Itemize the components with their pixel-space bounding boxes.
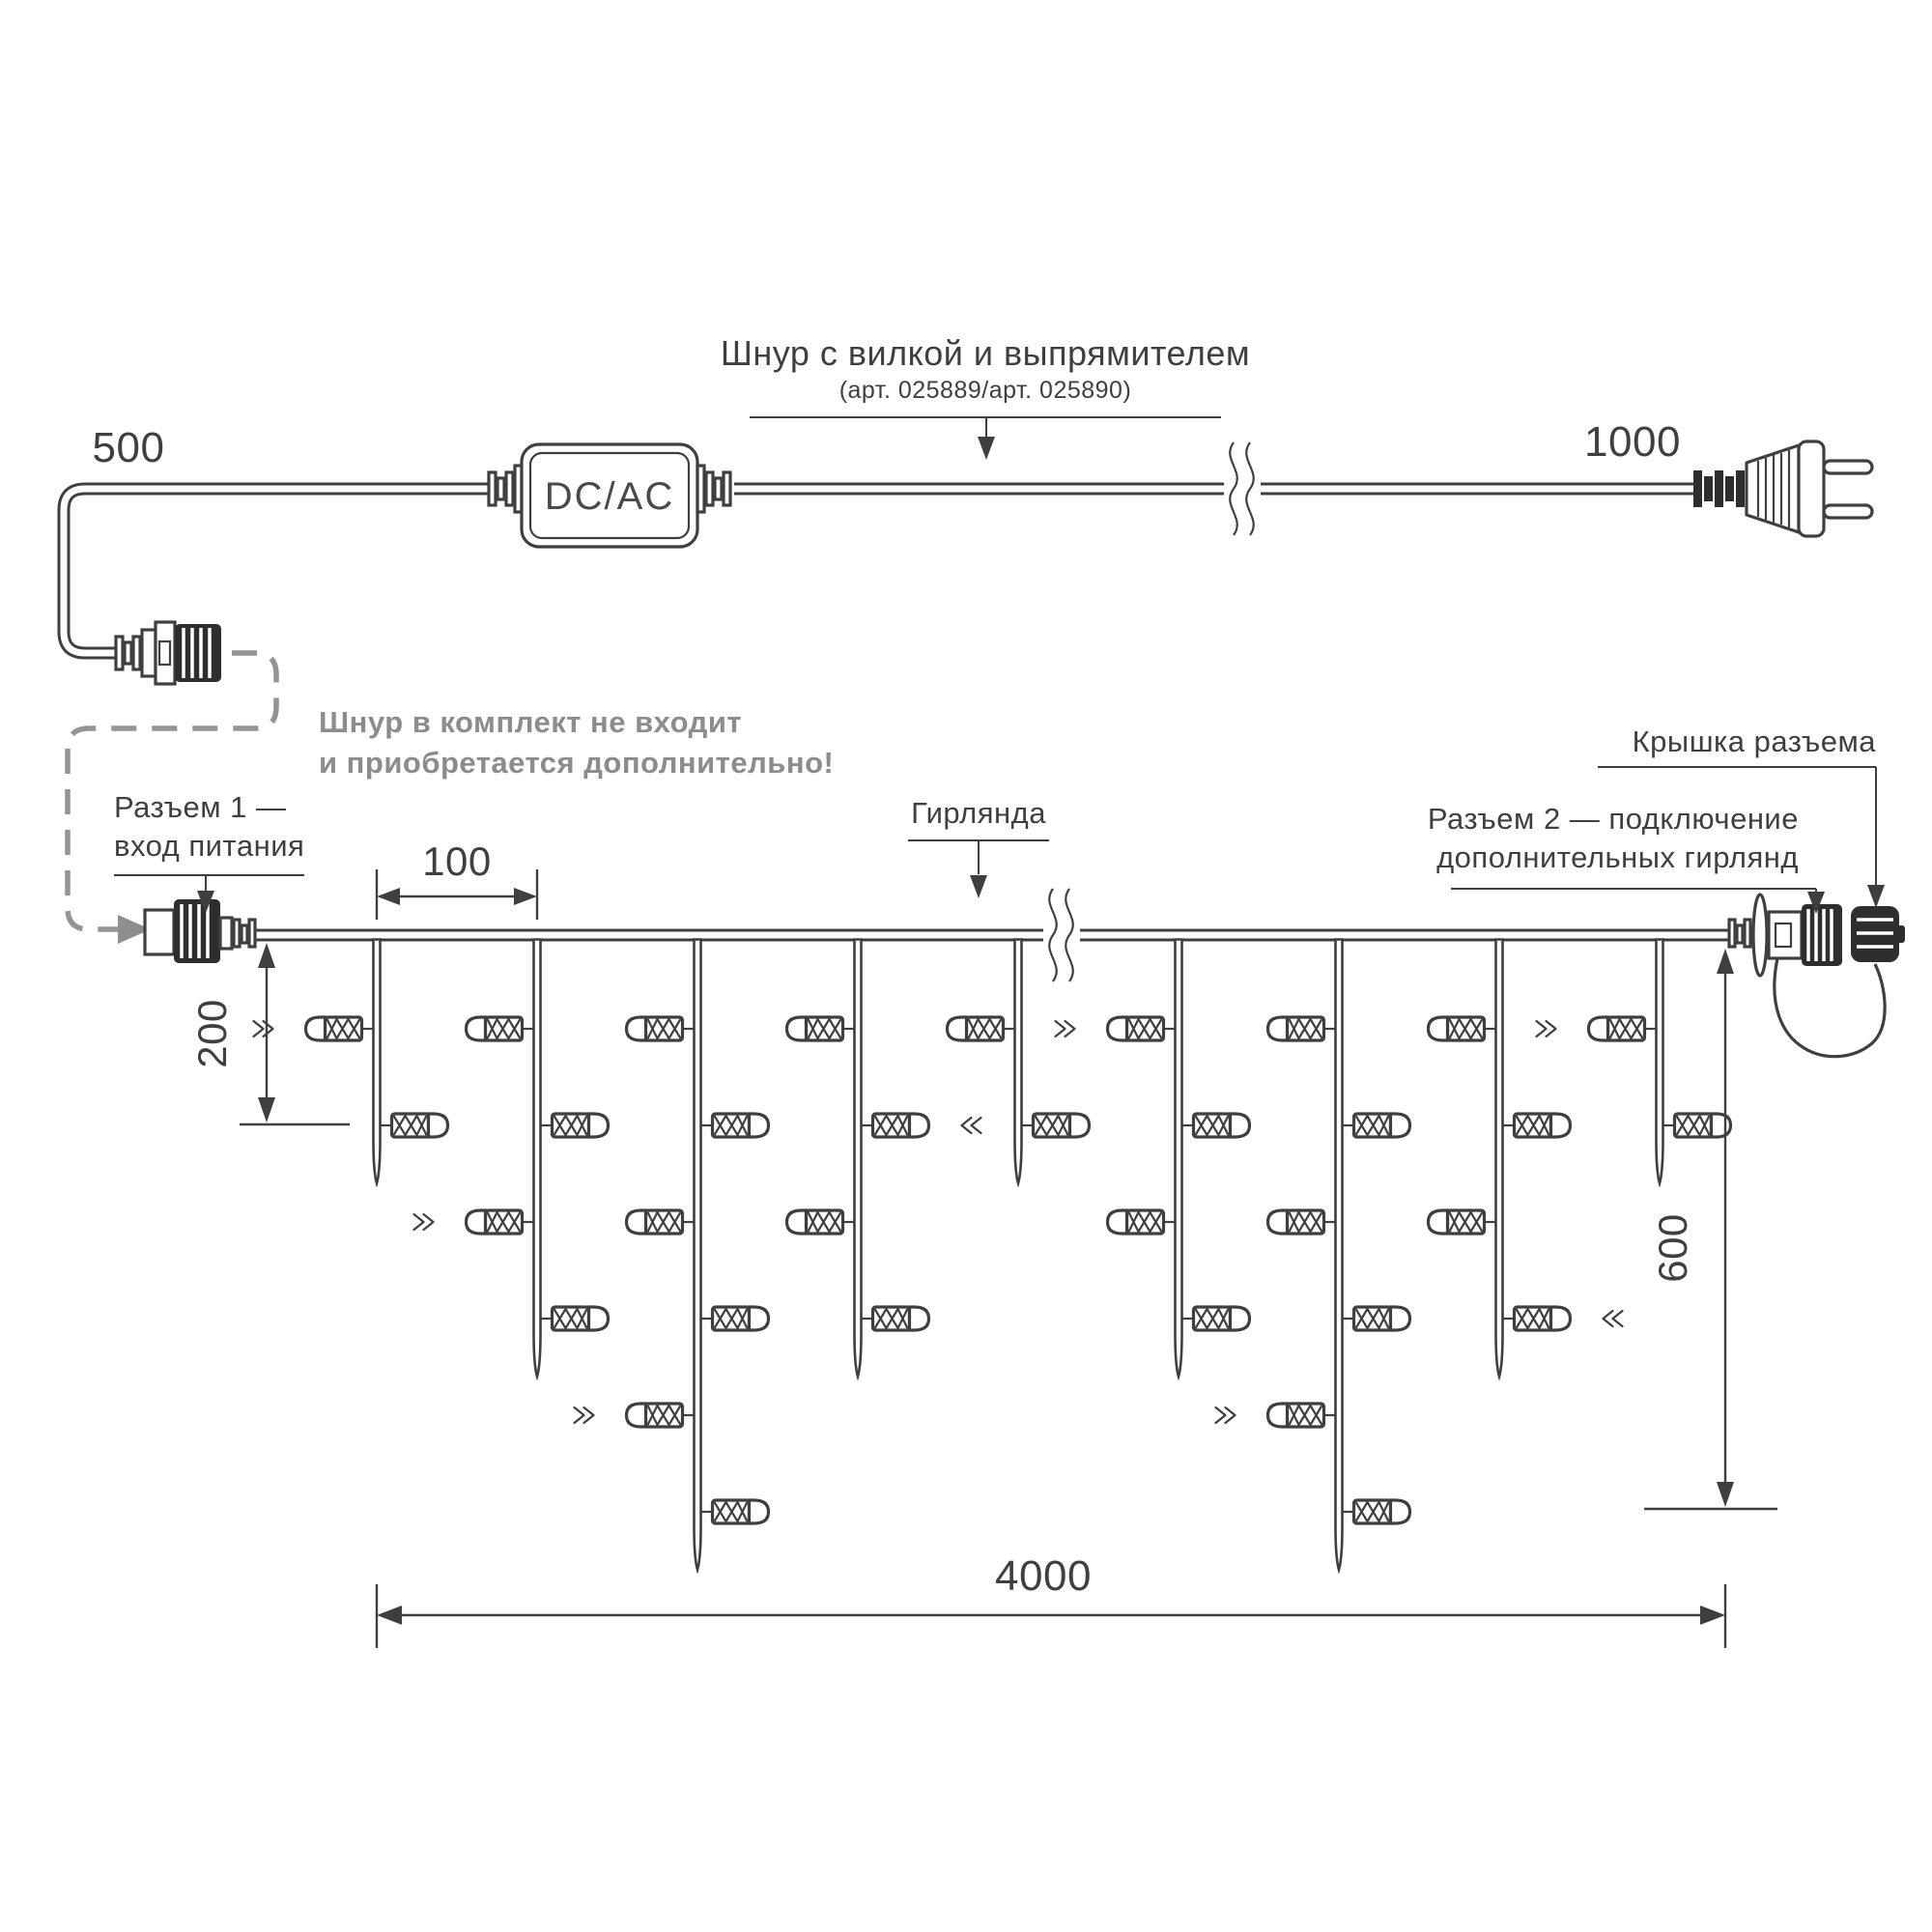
led-bulb-icon (1182, 1114, 1250, 1137)
dim-500-label: 500 (93, 424, 165, 471)
led-bulb-icon (306, 1017, 374, 1040)
led-bulb-icon (1268, 1404, 1336, 1427)
led-bulb-icon (1343, 1307, 1410, 1330)
led-bulb-icon (1589, 1017, 1657, 1040)
led-bulb-icon (862, 1307, 929, 1330)
led-bulb-icon (541, 1114, 609, 1137)
icicle-drop (254, 940, 448, 1184)
led-bulb-icon (381, 1114, 448, 1137)
led-bulb-icon (1108, 1210, 1176, 1234)
led-bulb-icon (1429, 1210, 1496, 1234)
led-bulb-icon (627, 1017, 695, 1040)
dim-4000-label: 4000 (995, 1552, 1092, 1600)
connector2-callout: Разъем 2 — подключение дополнительных ги… (1428, 802, 1825, 914)
garland-drops (254, 940, 1731, 1571)
led-bulb-icon (1503, 1307, 1571, 1330)
led-bulb-icon (467, 1210, 534, 1234)
led-bulb-icon (1503, 1114, 1571, 1137)
note-line1: Шнур в комплект не входит (319, 705, 742, 739)
led-bulb-icon (1343, 1114, 1410, 1137)
led-bulb-icon (1182, 1307, 1250, 1330)
converter-label: DC/AC (545, 475, 674, 518)
sparkle-icon (962, 1118, 981, 1133)
connector1-callout: Разъем 1 — вход питания (114, 790, 304, 913)
icicle-drop (1216, 940, 1410, 1571)
power-cord-assembly: DC/AC Шнур с вилкой (64, 333, 1872, 684)
led-bulb-icon (1268, 1017, 1336, 1040)
icicle-drop (787, 940, 981, 1378)
connector1-label-line2: вход питания (114, 829, 304, 863)
sparkle-icon (1216, 1407, 1236, 1423)
cap-label: Крышка разъема (1633, 724, 1877, 758)
dc-ac-converter: DC/AC (489, 444, 730, 547)
dim-100-label: 100 (422, 838, 492, 884)
icicle-drop (575, 940, 769, 1571)
connector2-label-line2: дополнительных гирлянд (1436, 840, 1799, 874)
connector2-label-line1: Разъем 2 — подключение (1428, 802, 1799, 836)
dim-600-label: 600 (1650, 1213, 1695, 1283)
dimension-4000: 4000 (377, 1552, 1725, 1648)
diagram-canvas: DC/AC Шнур с вилкой (0, 0, 1932, 1932)
led-bulb-icon (627, 1210, 695, 1234)
led-bulb-icon (701, 1307, 769, 1330)
cord-break-icon (1224, 442, 1261, 535)
led-bulb-icon (1108, 1017, 1176, 1040)
sparkle-icon (1056, 1021, 1075, 1037)
led-bulb-icon (862, 1114, 929, 1137)
led-bulb-icon (1268, 1210, 1336, 1234)
led-bulb-icon (1343, 1500, 1410, 1523)
icicle-drop (1056, 940, 1250, 1378)
cap-tether-wire (1775, 958, 1885, 1057)
led-bulb-icon (787, 1210, 855, 1234)
note-line2: и приобретается дополнительно! (319, 746, 834, 780)
led-bulb-icon (787, 1017, 855, 1040)
icicle-drop (414, 940, 609, 1378)
connector-cap-icon (1851, 906, 1905, 962)
sparkle-icon (1537, 1021, 1556, 1037)
cord-article-numbers: (арт. 025889/арт. 025890) (839, 377, 1132, 404)
wiring-diagram: DC/AC Шнур с вилкой (0, 0, 1932, 1932)
sparkle-icon (414, 1214, 434, 1230)
garland-callout: Гирлянда (908, 796, 1049, 898)
sparkle-icon (1604, 1311, 1623, 1326)
garland-label: Гирлянда (911, 796, 1046, 830)
led-bulb-icon (541, 1307, 609, 1330)
led-bulb-icon (1429, 1017, 1496, 1040)
dim-200-label: 200 (189, 999, 235, 1068)
led-bulb-icon (701, 1114, 769, 1137)
cord-title-callout: Шнур с вилкой и выпрямителем (арт. 02588… (721, 333, 1250, 460)
extension-connector (1729, 895, 1905, 1057)
led-bulb-icon (701, 1500, 769, 1523)
garland-break-icon (1043, 889, 1080, 981)
power-plug-icon (1693, 441, 1872, 536)
led-bulb-icon (1663, 1114, 1731, 1137)
led-bulb-icon (1022, 1114, 1090, 1137)
cord-title: Шнур с вилкой и выпрямителем (721, 333, 1250, 373)
led-bulb-icon (467, 1017, 534, 1040)
dimension-100: 100 (377, 838, 537, 920)
icicle-drop (1429, 940, 1623, 1378)
connector1-label-line1: Разъем 1 — (114, 790, 286, 824)
cord-500-end-connector (116, 622, 221, 684)
dim-1000-label: 1000 (1584, 418, 1681, 466)
led-bulb-icon (948, 1017, 1015, 1040)
sparkle-icon (254, 1021, 273, 1037)
icicle-drop (1537, 940, 1731, 1184)
power-input-connector (145, 899, 255, 963)
led-bulb-icon (627, 1404, 695, 1427)
sparkle-icon (575, 1407, 594, 1423)
power-cord-500 (64, 489, 488, 653)
